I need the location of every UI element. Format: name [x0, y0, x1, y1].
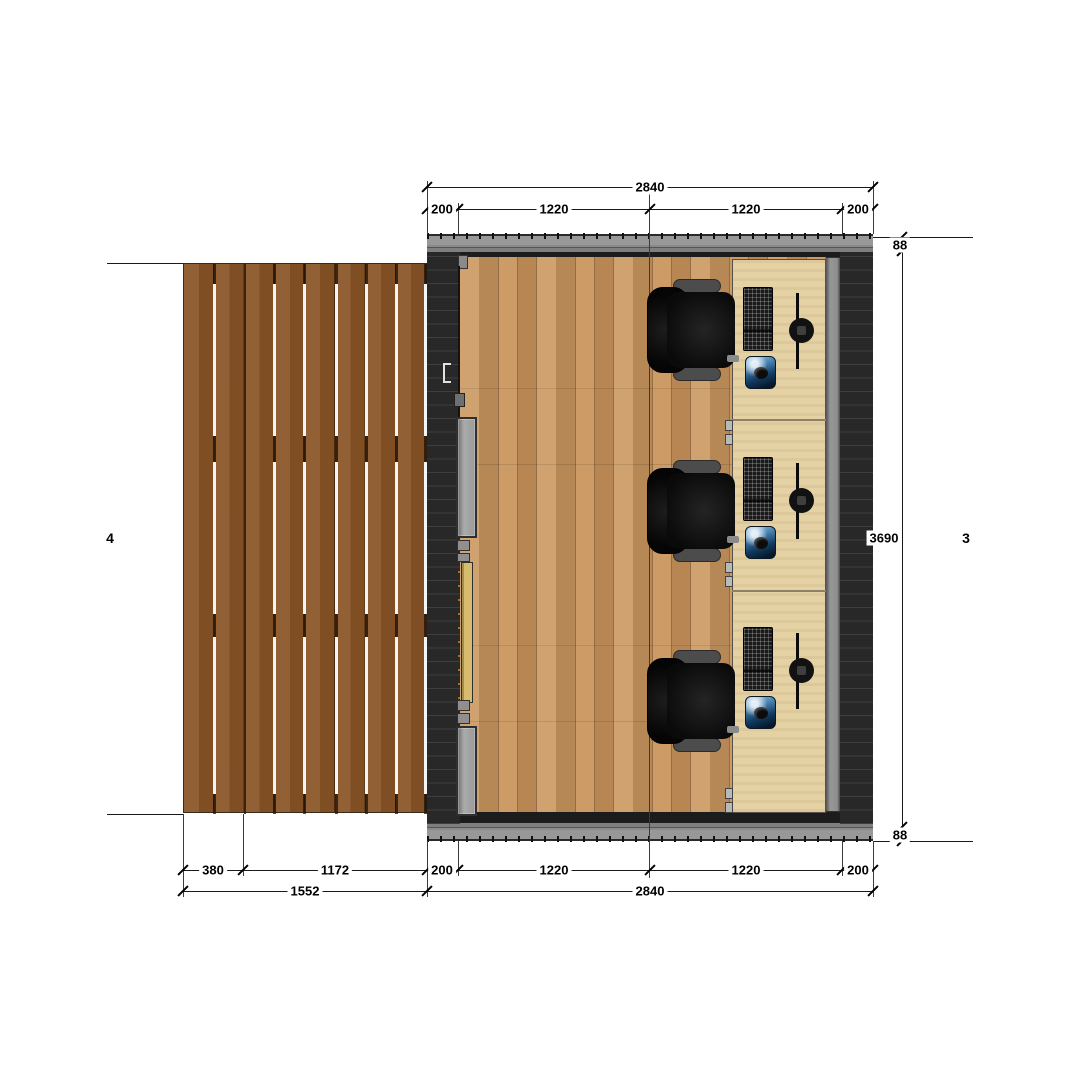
ref-line-right-bottom — [873, 841, 973, 842]
dim-label: 200 — [844, 202, 872, 217]
ext-line — [183, 814, 184, 897]
top-wall-inner-edge — [460, 252, 840, 257]
glazing-seal-dots — [458, 566, 460, 699]
bottom-wall-band — [427, 823, 873, 841]
workstation-3 — [640, 618, 840, 758]
ref-line-left-bottom — [107, 814, 183, 815]
door-frame-block — [457, 540, 470, 551]
workstation-2 — [640, 448, 840, 588]
dim-label: 1220 — [729, 863, 764, 878]
office-chair — [647, 279, 735, 381]
sliding-door-panel — [456, 417, 477, 538]
sliding-door-panel — [456, 726, 477, 816]
keyboard — [743, 287, 773, 351]
office-chair — [647, 460, 735, 562]
deck-board-gap — [395, 264, 398, 814]
mouse — [754, 367, 768, 379]
dim-label: 1552 — [288, 884, 323, 899]
monitor-base — [789, 488, 814, 513]
dim-line-bottom-segments — [183, 870, 873, 871]
door-frame-block — [457, 713, 470, 724]
desk-bracket — [725, 802, 733, 813]
desk-joint — [732, 419, 826, 421]
grid-label-left: 4 — [106, 530, 114, 546]
cladding-ticks — [427, 233, 873, 239]
chair-seat — [667, 292, 735, 368]
dim-label: 88 — [890, 828, 910, 843]
deck-board-gap — [365, 264, 368, 814]
dim-label: 200 — [428, 863, 456, 878]
monitor-base — [789, 658, 814, 683]
monitor-neck — [797, 496, 806, 505]
desk-bracket — [725, 788, 733, 799]
dim-label: 1220 — [537, 202, 572, 217]
dim-label: 1220 — [537, 863, 572, 878]
deck-section-joint — [244, 264, 246, 814]
mouse — [754, 537, 768, 549]
ref-line-right-top — [873, 237, 973, 238]
dim-label: 88 — [890, 238, 910, 253]
bottom-wall-inner-edge — [460, 812, 840, 823]
deck-board-gap — [303, 264, 306, 814]
chair-lever — [727, 355, 739, 362]
workstation-1 — [640, 278, 840, 418]
chair-seat — [667, 473, 735, 549]
monitor-base — [789, 318, 814, 343]
dim-line-right — [902, 237, 903, 841]
cladding-ticks — [427, 836, 873, 842]
door-stop-block — [454, 393, 465, 407]
dim-label: 200 — [428, 202, 456, 217]
deck-board-gap — [213, 264, 216, 814]
deck-board-gap — [273, 264, 276, 814]
glass-side-panel — [461, 562, 473, 703]
mouse — [754, 707, 768, 719]
dim-line-bottom-overall — [183, 891, 873, 892]
chair-lever — [727, 536, 739, 543]
chair-seat — [667, 663, 735, 739]
floor-plan-canvas: 2840 200 1220 1220 200 88 3690 88 380 11… — [0, 0, 1080, 1080]
dim-label: 3690 — [867, 531, 902, 546]
deck-board-gap — [335, 264, 338, 814]
top-wall-band — [427, 234, 873, 252]
office-chair — [647, 650, 735, 752]
monitor-neck — [797, 326, 806, 335]
desk-joint — [732, 590, 826, 592]
dim-label: 2840 — [633, 884, 668, 899]
timber-deck — [183, 263, 427, 813]
door-frame-block — [457, 700, 470, 711]
monitor-neck — [797, 666, 806, 675]
desk-bracket — [725, 420, 733, 431]
mouse-pad — [745, 696, 776, 729]
grid-label-right: 3 — [962, 530, 970, 546]
keyboard — [743, 627, 773, 691]
keyboard — [743, 457, 773, 521]
dim-label: 1172 — [318, 863, 352, 878]
ref-line-left-top — [107, 263, 183, 264]
desk-bracket — [725, 434, 733, 445]
dim-label: 380 — [199, 863, 227, 878]
door-handle — [443, 363, 451, 383]
door-frame-block — [457, 553, 470, 562]
dim-label: 200 — [844, 863, 872, 878]
mouse-pad — [745, 356, 776, 389]
mouse-pad — [745, 526, 776, 559]
dim-label-top-overall: 2840 — [633, 180, 668, 195]
dim-label: 1220 — [729, 202, 764, 217]
chair-lever — [727, 726, 739, 733]
